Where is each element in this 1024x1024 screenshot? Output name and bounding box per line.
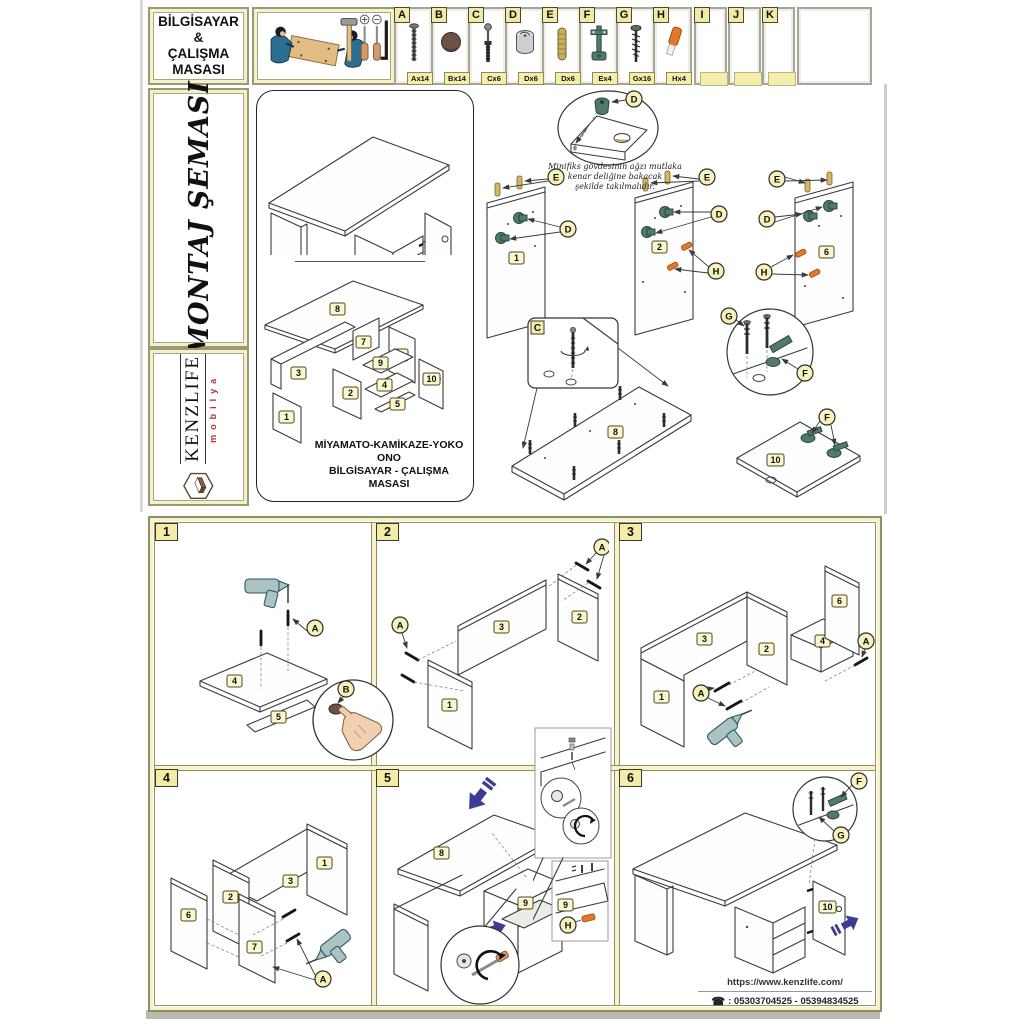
- callout-letter-f: F: [819, 409, 835, 425]
- phone-numbers: : 05303704525 - 05394834525: [728, 996, 858, 1007]
- hardware-qty: Ax14: [407, 72, 433, 85]
- svg-text:A: A: [397, 621, 404, 632]
- step-4-drawing: 3 1 2 6 7: [155, 769, 371, 1005]
- panel-6-detail: E D H 6: [756, 171, 853, 327]
- part-tag-5: 5: [271, 711, 286, 723]
- part-tag-3: 3: [291, 367, 306, 379]
- part-tag-9: 9: [518, 897, 533, 909]
- hardware-item-i: I: [694, 7, 727, 85]
- brand-name: KENZLIFE: [180, 353, 206, 464]
- svg-text:2: 2: [228, 892, 233, 902]
- scan-edge-left: [140, 0, 143, 512]
- svg-text:5: 5: [395, 399, 400, 409]
- svg-text:3: 3: [296, 368, 301, 378]
- hardware-qty: Dx6: [518, 72, 544, 85]
- step-6-drawing: 10 F G: [619, 769, 875, 1005]
- hardware-qty-blank: [700, 72, 728, 86]
- wood-dowel-icon: [546, 15, 577, 73]
- callout-letter-h: H: [708, 263, 724, 279]
- part-tag-4: 4: [377, 379, 392, 391]
- part-tag-3: 3: [283, 875, 298, 887]
- svg-text:E: E: [774, 175, 780, 186]
- exploded-view-drawing: 8 3 7 6 9 2 4 5 10 1: [257, 267, 469, 447]
- callout-letter-b: B: [338, 681, 354, 697]
- svg-text:1: 1: [659, 692, 664, 702]
- hardware-qty: Gx16: [629, 72, 655, 85]
- fitting-detail-diagrams: D E D 1: [475, 86, 880, 510]
- footer-divider: [698, 991, 872, 992]
- assembly-steps-grid: 1 A 4 5: [148, 516, 882, 1012]
- hardware-item-k: K: [762, 7, 795, 85]
- svg-text:4: 4: [232, 676, 237, 686]
- part-tag-8: 8: [434, 847, 449, 859]
- step-2-number: 2: [376, 523, 399, 541]
- callout-letter-a: A: [594, 539, 609, 555]
- hardware-item-f: F Ex4: [579, 7, 618, 85]
- svg-text:G: G: [725, 312, 732, 323]
- part-tag-6: 6: [819, 246, 834, 258]
- part-tag-8: 8: [608, 426, 623, 438]
- product-title-line: &: [194, 30, 204, 46]
- step-3-number: 3: [619, 523, 642, 541]
- step-5-number: 5: [376, 769, 399, 787]
- svg-text:H: H: [761, 268, 768, 279]
- part-tag-2: 2: [223, 891, 238, 903]
- svg-text:9: 9: [523, 898, 528, 908]
- svg-text:3: 3: [499, 622, 504, 632]
- drill-icon: [706, 704, 764, 757]
- svg-text:5: 5: [276, 712, 281, 722]
- hardware-letter: F: [579, 7, 595, 23]
- schema-title: MONTAJ ŞEMASI: [154, 93, 244, 343]
- panel-2-detail: E D H 2: [635, 169, 727, 335]
- part-tag-1: 1: [442, 699, 457, 711]
- part-tag-3: 3: [494, 621, 509, 633]
- minifix-lock-callout: [533, 726, 613, 938]
- part-tag-1: 1: [317, 857, 332, 869]
- callout-letter-e: E: [699, 169, 715, 185]
- hardware-qty: Dx6: [555, 72, 581, 85]
- part-tag-2: 2: [652, 241, 667, 253]
- svg-text:8: 8: [613, 427, 618, 437]
- hardware-letter: I: [694, 7, 710, 23]
- part-tag-1: 1: [279, 411, 294, 423]
- hinge-icon: [583, 15, 614, 73]
- callout-letter-d: D: [560, 221, 576, 237]
- hardware-qty: Bx14: [444, 72, 470, 85]
- hardware-qty: Ex4: [592, 72, 618, 85]
- hardware-item-extra-empty: [797, 7, 872, 85]
- callout-letter-g: G: [833, 827, 849, 843]
- svg-text:8: 8: [439, 848, 444, 858]
- assembly-sheet: BİLGİSAYAR & ÇALIŞMA MASASI: [0, 0, 1024, 1024]
- hardware-letter: C: [468, 7, 484, 23]
- part-tag-8: 8: [330, 303, 345, 315]
- hardware-letter: J: [728, 7, 744, 23]
- drill-icon: [303, 928, 359, 980]
- hardware-item-d: D Dx6: [505, 7, 544, 85]
- part-tag-10: 10: [423, 373, 440, 385]
- svg-text:3: 3: [288, 876, 293, 886]
- part-tag-1: 1: [654, 691, 669, 703]
- product-title-line: BİLGİSAYAR: [158, 14, 239, 30]
- svg-text:2: 2: [764, 644, 769, 654]
- panel-8-detail: 8: [512, 386, 691, 500]
- part-tag-2: 2: [572, 611, 587, 623]
- kenzlife-logo-icon: [176, 471, 222, 501]
- product-title-box: BİLGİSAYAR & ÇALIŞMA MASASI: [148, 7, 249, 85]
- hardware-letter: B: [431, 7, 447, 23]
- product-title-line: ÇALIŞMA: [168, 46, 230, 62]
- hardware-item-g: G Gx16: [616, 7, 655, 85]
- hinge-fix-callout: F G: [793, 773, 867, 885]
- hardware-qty-blank: [768, 72, 796, 86]
- footer: https://www.kenzlife.com/ ☎ : 0530370452…: [698, 977, 872, 1008]
- part-tag-2: 2: [759, 643, 774, 655]
- svg-text:1: 1: [322, 858, 327, 868]
- flat-screwdriver-icon: [373, 15, 382, 60]
- svg-text:H: H: [713, 267, 720, 278]
- hardware-qty: Hx4: [666, 72, 692, 85]
- hardware-letter: E: [542, 7, 558, 23]
- hardware-letter: A: [394, 7, 410, 23]
- svg-text:10: 10: [822, 902, 832, 912]
- callout-letter-a: A: [392, 617, 408, 633]
- svg-text:A: A: [599, 543, 606, 554]
- callout-letter-g: G: [721, 308, 737, 324]
- svg-text:A: A: [698, 689, 705, 700]
- svg-text:10: 10: [770, 455, 780, 465]
- hardware-letter: K: [762, 7, 778, 23]
- overview-product-name: MİYAMATO-KAMİKAZE-YOKO ONO BİLGİSAYAR - …: [309, 439, 469, 491]
- overview-panel: 8 3 7 6 9 2 4 5 10 1 MİYAMATO-KAMİKAZE-Y…: [256, 90, 474, 502]
- cam-turn-callout: [441, 926, 519, 1004]
- svg-text:F: F: [802, 369, 808, 380]
- svg-text:C: C: [534, 323, 541, 334]
- shelf-pin-icon: [657, 15, 688, 73]
- svg-text:D: D: [565, 225, 572, 236]
- svg-text:F: F: [856, 777, 862, 788]
- hardware-item-a: A Ax14: [394, 7, 433, 85]
- brand-subname: mobilya: [208, 353, 218, 464]
- svg-text:3: 3: [702, 634, 707, 644]
- svg-text:1: 1: [284, 412, 289, 422]
- callout-letter-c: C: [531, 321, 544, 334]
- svg-text:8: 8: [335, 304, 340, 314]
- allen-key-icon: [381, 20, 387, 58]
- hardware-item-h: H Hx4: [653, 7, 692, 85]
- callout-letter-d: D: [626, 91, 642, 107]
- svg-text:4: 4: [382, 380, 387, 390]
- hinge-screw-callout: G F: [721, 308, 813, 395]
- callout-letter-h: H: [756, 264, 772, 280]
- phone-icon: ☎: [711, 995, 725, 1008]
- svg-text:B: B: [343, 685, 350, 696]
- svg-text:D: D: [716, 210, 723, 221]
- minifix-callout: D: [558, 91, 658, 165]
- svg-text:7: 7: [252, 942, 257, 952]
- minifix-body: [595, 98, 609, 115]
- hardware-qty: Cx6: [481, 72, 507, 85]
- svg-text:F: F: [824, 413, 830, 424]
- scan-edge-right: [884, 84, 887, 514]
- hardware-item-b: B Bx14: [431, 7, 470, 85]
- phillips-screwdriver-icon: [360, 15, 369, 60]
- hardware-item-e: E Dx6: [542, 7, 581, 85]
- part-tag-5: 5: [390, 398, 405, 410]
- callout-letter-f: F: [797, 365, 813, 381]
- svg-text:A: A: [320, 975, 327, 986]
- part-tag-6: 6: [832, 595, 847, 607]
- callout-letter-d: D: [759, 211, 775, 227]
- callout-letter-e: E: [769, 171, 785, 187]
- press-arrow: [461, 776, 498, 816]
- hardware-letter: G: [616, 7, 632, 23]
- step-4-number: 4: [155, 769, 178, 787]
- cam-bolt-icon: [472, 15, 503, 73]
- svg-text:D: D: [764, 215, 771, 226]
- part-tag-3: 3: [697, 633, 712, 645]
- callout-letter-a: A: [693, 685, 709, 701]
- step-6: 6 10: [619, 769, 875, 1005]
- panel-10-detail: F 10: [737, 409, 860, 497]
- hardware-qty-blank: [734, 72, 762, 86]
- assembled-desk-drawing: [257, 95, 469, 255]
- long-screw-icon: [398, 15, 429, 73]
- svg-text:2: 2: [348, 388, 353, 398]
- website-url: https://www.kenzlife.com/: [698, 977, 872, 990]
- svg-text:9: 9: [378, 358, 383, 368]
- hardware-item-j: J: [728, 7, 761, 85]
- part-tag-6: 6: [181, 909, 196, 921]
- svg-text:4: 4: [820, 636, 825, 646]
- drill-icon: [245, 579, 289, 608]
- svg-text:A: A: [312, 624, 319, 635]
- svg-text:6: 6: [837, 596, 842, 606]
- tools-illustration: [256, 11, 392, 79]
- chipboard-screw-icon: [620, 15, 651, 73]
- brand-box: KENZLIFE mobilya: [148, 348, 249, 506]
- panel-1-detail: E D 1: [487, 169, 576, 338]
- svg-text:D: D: [631, 95, 638, 106]
- minifix-note: Minifiks gövdesinin ağzı mutlaka kenar d…: [540, 162, 690, 192]
- step-3-drawing: 3 1 2 4 6 A A: [619, 523, 875, 765]
- minifix-cam-icon: [509, 15, 540, 73]
- svg-text:2: 2: [577, 612, 582, 622]
- callout-letter-d: D: [711, 206, 727, 222]
- callout-letter-a: A: [307, 620, 323, 636]
- overview-divider: [295, 261, 425, 262]
- svg-text:G: G: [837, 831, 844, 842]
- tools-box: [252, 7, 396, 85]
- step-1-number: 1: [155, 523, 178, 541]
- part-tag-10: 10: [819, 901, 836, 913]
- svg-text:1: 1: [514, 253, 519, 263]
- step-3: 3 3 1 2 4 6 A: [619, 523, 875, 765]
- part-tag-4: 4: [227, 675, 242, 687]
- part-tag-2: 2: [343, 387, 358, 399]
- part-tag-1: 1: [509, 252, 524, 264]
- part-tag-10: 10: [767, 454, 784, 466]
- callout-letter-a: A: [315, 971, 331, 987]
- svg-text:7: 7: [361, 337, 366, 347]
- product-title-line: MASASI: [172, 62, 225, 78]
- svg-text:10: 10: [426, 374, 436, 384]
- cover-cap-icon: [435, 15, 466, 73]
- hardware-letter: H: [653, 7, 669, 23]
- step-4: 4 3 1 2 6 7: [155, 769, 371, 1005]
- part-tag-7: 7: [247, 941, 262, 953]
- svg-text:6: 6: [824, 247, 829, 257]
- svg-text:1: 1: [447, 700, 452, 710]
- step-6-number: 6: [619, 769, 642, 787]
- svg-text:E: E: [704, 173, 710, 184]
- svg-text:6: 6: [186, 910, 191, 920]
- part-tag-7: 7: [356, 336, 371, 348]
- hardware-letter: D: [505, 7, 521, 23]
- callout-letter-f: F: [851, 773, 867, 789]
- hardware-item-c: C Cx6: [468, 7, 507, 85]
- part-tag-9: 9: [373, 357, 388, 369]
- cap-press-callout: B: [310, 675, 396, 761]
- schema-title-box: MONTAJ ŞEMASI: [148, 88, 249, 348]
- svg-text:2: 2: [657, 242, 662, 252]
- svg-text:A: A: [863, 637, 870, 648]
- callout-letter-a: A: [858, 633, 874, 649]
